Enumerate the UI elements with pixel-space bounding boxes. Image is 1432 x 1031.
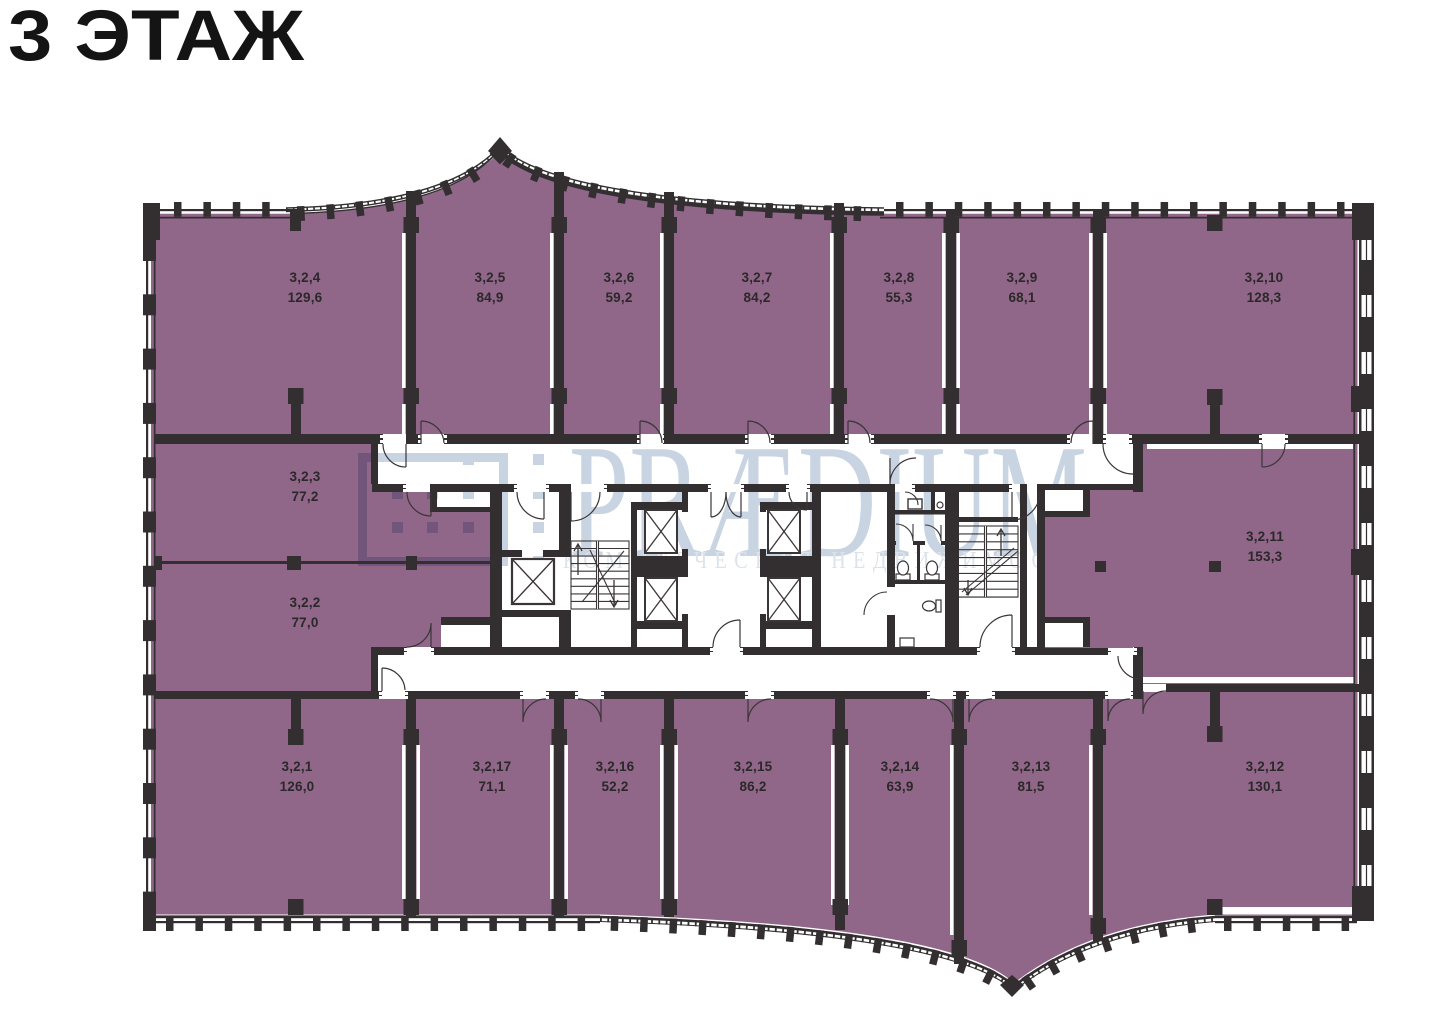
- svg-text:130,1: 130,1: [1248, 779, 1283, 794]
- svg-text:3,2,1: 3,2,1: [281, 759, 312, 774]
- svg-text:3,2,11: 3,2,11: [1246, 529, 1284, 544]
- svg-text:59,2: 59,2: [605, 290, 632, 305]
- svg-text:3,2,6: 3,2,6: [603, 270, 634, 285]
- svg-text:68,1: 68,1: [1008, 290, 1035, 305]
- svg-text:129,6: 129,6: [288, 290, 323, 305]
- svg-text:3,2,3: 3,2,3: [289, 469, 320, 484]
- svg-text:81,5: 81,5: [1017, 779, 1044, 794]
- svg-text:77,0: 77,0: [291, 615, 318, 630]
- svg-text:3,2,16: 3,2,16: [596, 759, 635, 774]
- svg-text:3,2,12: 3,2,12: [1246, 759, 1285, 774]
- svg-text:3,2,15: 3,2,15: [734, 759, 773, 774]
- svg-text:3,2,2: 3,2,2: [289, 595, 320, 610]
- svg-text:3,2,8: 3,2,8: [883, 270, 914, 285]
- svg-text:153,3: 153,3: [1248, 549, 1283, 564]
- svg-text:3,2,14: 3,2,14: [881, 759, 920, 774]
- svg-text:3,2,5: 3,2,5: [474, 270, 505, 285]
- svg-text:128,3: 128,3: [1247, 290, 1282, 305]
- svg-text:3,2,9: 3,2,9: [1006, 270, 1037, 285]
- svg-text:3,2,13: 3,2,13: [1012, 759, 1051, 774]
- svg-text:71,1: 71,1: [478, 779, 505, 794]
- svg-text:55,3: 55,3: [885, 290, 912, 305]
- svg-text:3 ЭТАЖ: 3 ЭТАЖ: [8, 0, 305, 76]
- svg-text:3,2,7: 3,2,7: [741, 270, 772, 285]
- svg-text:52,2: 52,2: [601, 779, 628, 794]
- svg-text:126,0: 126,0: [280, 779, 315, 794]
- svg-text:63,9: 63,9: [886, 779, 913, 794]
- svg-text:3,2,4: 3,2,4: [289, 270, 320, 285]
- svg-text:84,2: 84,2: [743, 290, 770, 305]
- svg-text:86,2: 86,2: [739, 779, 766, 794]
- svg-text:3,2,10: 3,2,10: [1245, 270, 1284, 285]
- svg-text:77,2: 77,2: [291, 489, 318, 504]
- svg-text:3,2,17: 3,2,17: [473, 759, 512, 774]
- svg-text:84,9: 84,9: [476, 290, 503, 305]
